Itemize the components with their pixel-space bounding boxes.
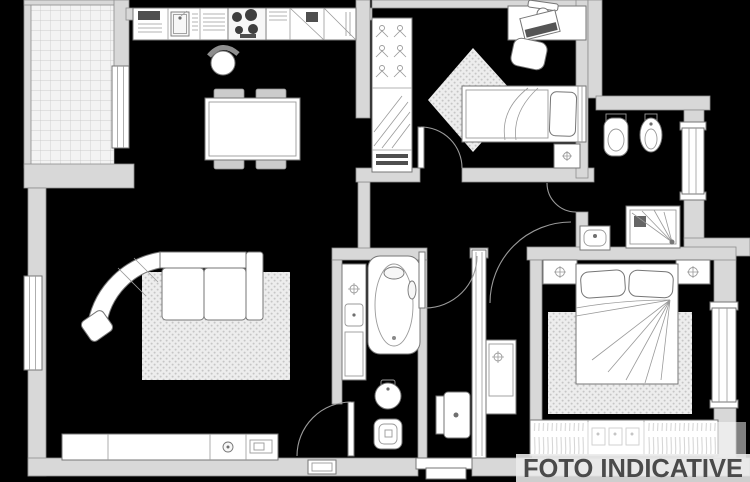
door-leaf-icon xyxy=(348,402,354,456)
shower-icon xyxy=(626,206,680,248)
floor-plan-drawing: FOTO INDICATIVE xyxy=(0,0,750,482)
double-bed-icon xyxy=(576,264,678,384)
kitchen-counter-icon xyxy=(133,8,356,40)
bathtub-icon xyxy=(368,256,420,354)
washbasin-icon xyxy=(436,392,470,438)
washbasin-icon xyxy=(580,226,610,250)
master-window-icon xyxy=(710,302,738,408)
bottom-vent-icon xyxy=(308,460,336,474)
wardrobe-icon xyxy=(372,18,412,172)
living-window-icon xyxy=(24,276,42,370)
corridor-partition-wall xyxy=(470,248,488,458)
desk-icon xyxy=(508,0,586,40)
balcony-door-icon xyxy=(112,66,129,148)
balcony-tiles-icon xyxy=(30,5,114,165)
washbasin-icon xyxy=(486,340,516,414)
watermark-banner-upper xyxy=(532,422,746,458)
pillow-icon xyxy=(628,270,673,298)
door-leaf-icon xyxy=(419,252,425,308)
nightstand-icon xyxy=(554,144,580,168)
stove-icon xyxy=(228,8,266,40)
nightstand-icon xyxy=(676,260,710,284)
watermark-text: FOTO INDICATIVE xyxy=(523,455,743,482)
door-leaf-icon xyxy=(418,127,424,168)
tv-sideboard-icon xyxy=(62,434,278,460)
pillow-icon xyxy=(549,92,577,137)
nightstand-icon xyxy=(543,260,577,284)
watermark-banner: FOTO INDICATIVE xyxy=(516,422,750,482)
single-bed-icon xyxy=(462,86,586,142)
toilet-icon xyxy=(374,419,402,449)
dining-table-icon xyxy=(205,89,300,169)
toilet-icon xyxy=(604,114,628,156)
floor-plan-page: FOTO INDICATIVE xyxy=(0,0,750,482)
pillow-icon xyxy=(580,269,626,298)
bathroom2-window-icon xyxy=(680,122,706,200)
washing-column-icon xyxy=(342,264,366,380)
